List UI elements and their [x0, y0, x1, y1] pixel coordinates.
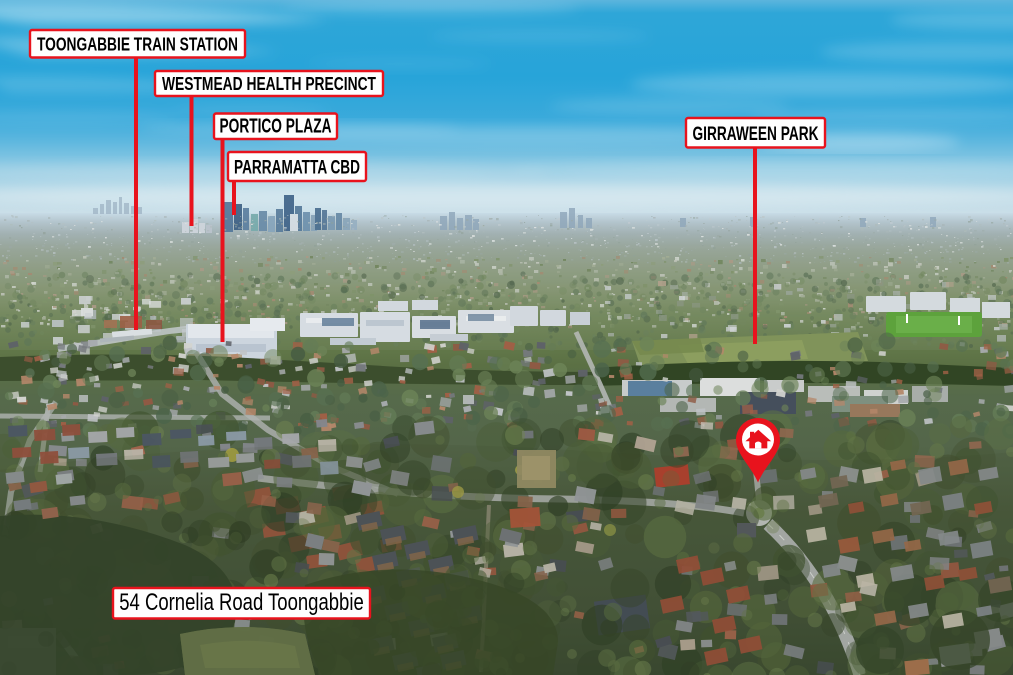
svg-text:54 Cornelia Road Toongabbie: 54 Cornelia Road Toongabbie	[119, 589, 364, 616]
svg-text:WESTMEAD HEALTH PRECINCT: WESTMEAD HEALTH PRECINCT	[162, 74, 376, 94]
svg-text:PORTICO PLAZA: PORTICO PLAZA	[220, 116, 332, 138]
svg-text:PARRAMATTA CBD: PARRAMATTA CBD	[234, 157, 360, 179]
svg-text:TOONGABBIE TRAIN STATION: TOONGABBIE TRAIN STATION	[37, 34, 238, 55]
svg-text:GIRRAWEEN PARK: GIRRAWEEN PARK	[693, 123, 819, 145]
